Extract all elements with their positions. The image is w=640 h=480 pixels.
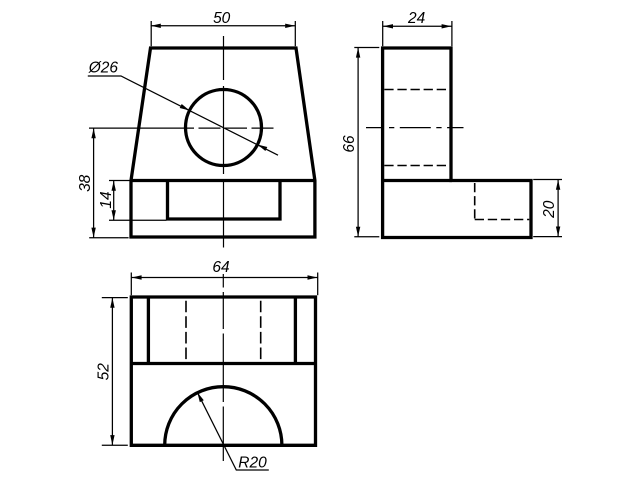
svg-text:64: 64 [212, 259, 230, 276]
svg-text:38: 38 [77, 174, 94, 192]
svg-text:66: 66 [341, 135, 358, 153]
svg-text:R20: R20 [238, 455, 267, 472]
svg-text:14: 14 [98, 191, 115, 209]
svg-text:20: 20 [541, 200, 558, 219]
svg-text:50: 50 [213, 10, 231, 27]
svg-text:Ø26: Ø26 [88, 60, 119, 77]
svg-text:24: 24 [407, 10, 426, 27]
svg-text:52: 52 [95, 363, 112, 381]
